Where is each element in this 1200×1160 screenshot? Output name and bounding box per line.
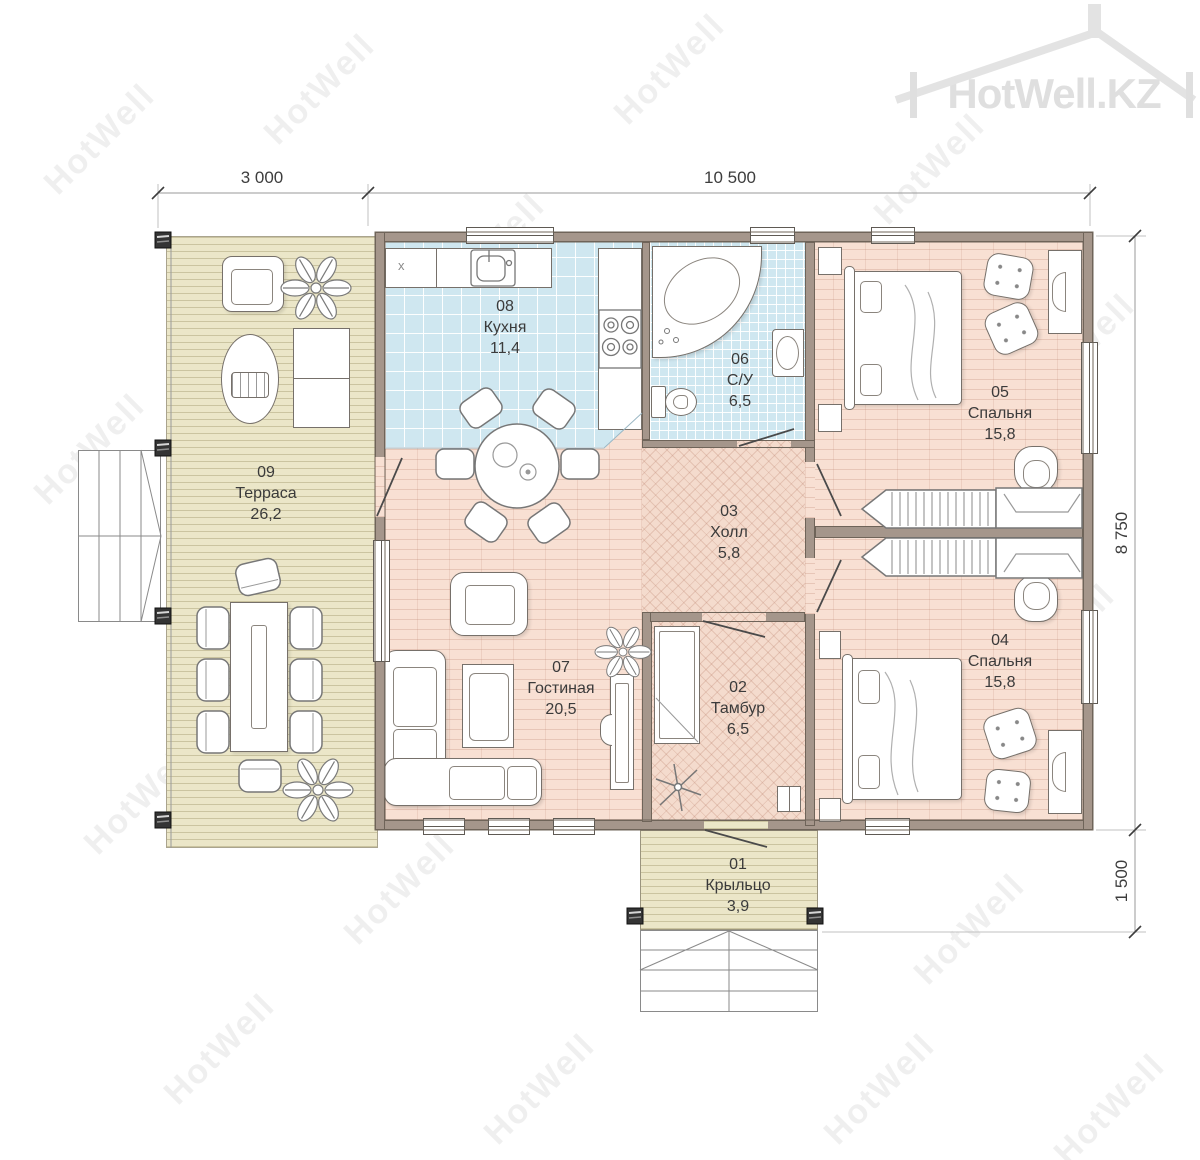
dimension-right-lower: 1 500: [1112, 841, 1132, 921]
wall-bedroom-divider: [815, 526, 1083, 538]
armchair-05-a: [982, 251, 1036, 302]
dimension-top-right: 10 500: [665, 168, 795, 188]
desk-chair-04: [1014, 574, 1058, 622]
door-opening-tambour: [702, 613, 766, 621]
room-label-living: 07Гостиная20,5: [511, 657, 611, 720]
watermark: HotWell: [817, 1026, 944, 1153]
kitchen-counter: [385, 248, 552, 288]
terrace-lounge-chair: [231, 372, 269, 398]
watermark: HotWell: [477, 1026, 604, 1153]
window-living-1: [423, 818, 465, 835]
living-armchair: [450, 572, 528, 636]
coffee-table: [462, 664, 514, 748]
window-bedroom-04-south: [865, 818, 910, 835]
watermark: HotWell: [257, 26, 384, 153]
wall-east: [1083, 232, 1093, 830]
bed-05-headboard: [844, 266, 855, 410]
terrace-cabinet: [293, 328, 350, 428]
watermark: HotWell: [607, 6, 734, 133]
wall-bedrooms-west: [805, 242, 815, 826]
room-label-hall: 03Холл5,8: [679, 501, 779, 564]
room-label-bedroom-05: 05Спальня15,8: [950, 382, 1050, 445]
watermark: HotWell: [867, 106, 994, 233]
nightstand-05-a: [818, 247, 842, 275]
sofa-main: [384, 758, 542, 806]
terrace-steps: [78, 450, 161, 622]
watermark: HotWell: [1047, 1046, 1174, 1160]
watermark: HotWell: [157, 986, 284, 1113]
armchair-04-b: [983, 768, 1032, 814]
wall-kitchen-bath: [642, 242, 650, 440]
door-opening-bedroom-05: [805, 462, 815, 518]
watermark: HotWell: [907, 866, 1034, 993]
kitchen-counter-east: [598, 248, 642, 430]
dimension-top-left: 3 000: [212, 168, 312, 188]
floor-plan-canvas: HotWell HotWell HotWell HotWell HotWell …: [0, 0, 1200, 1160]
desk-chair-05: [1014, 446, 1058, 494]
toilet-tank: [651, 386, 666, 418]
tv-stand: [610, 674, 634, 790]
nightstand-04-a: [819, 631, 841, 659]
window-bathroom: [750, 227, 795, 244]
nightstand-04-b: [819, 798, 841, 822]
dresser-04: [1048, 730, 1082, 814]
bed-04-headboard: [842, 654, 853, 804]
room-label-bedroom-04: 04Спальня15,8: [950, 630, 1050, 693]
door-opening-terrace: [375, 457, 385, 517]
dimension-right-upper: 8 750: [1112, 493, 1132, 573]
window-living-west: [373, 540, 390, 662]
dresser-05: [1048, 250, 1082, 334]
room-label-tambour: 02Тамбур6,5: [688, 677, 788, 740]
room-label-terrace: 09Терраса26,2: [216, 462, 316, 525]
terrace-table: [230, 602, 288, 752]
wall-living-tambour: [642, 612, 652, 822]
kitchen-cabinet-label: x: [398, 258, 405, 273]
porch-steps: [640, 930, 818, 1012]
shoe-box: [777, 786, 801, 812]
window-bedroom-05-north: [871, 227, 915, 244]
bed-04: [846, 658, 962, 800]
window-living-2: [488, 818, 530, 835]
terrace-armchair: [222, 256, 284, 312]
watermark: HotWell: [37, 76, 164, 203]
room-label-kitchen: 08Кухня11,4: [455, 296, 555, 359]
logo: HotWell.KZ: [925, 70, 1183, 118]
door-opening-bedroom-04: [805, 558, 815, 614]
window-kitchen: [466, 227, 554, 244]
window-bedroom-05-east: [1081, 342, 1098, 454]
bed-05: [848, 271, 962, 405]
door-opening-bathroom: [737, 441, 791, 447]
room-label-porch: 01Крыльцо3,9: [688, 854, 788, 917]
room-label-bathroom: 06С/У6,5: [690, 349, 790, 412]
window-living-3: [553, 818, 595, 835]
nightstand-05-b: [818, 404, 842, 432]
window-bedroom-04-east: [1081, 610, 1098, 704]
door-opening-porch: [704, 821, 768, 829]
